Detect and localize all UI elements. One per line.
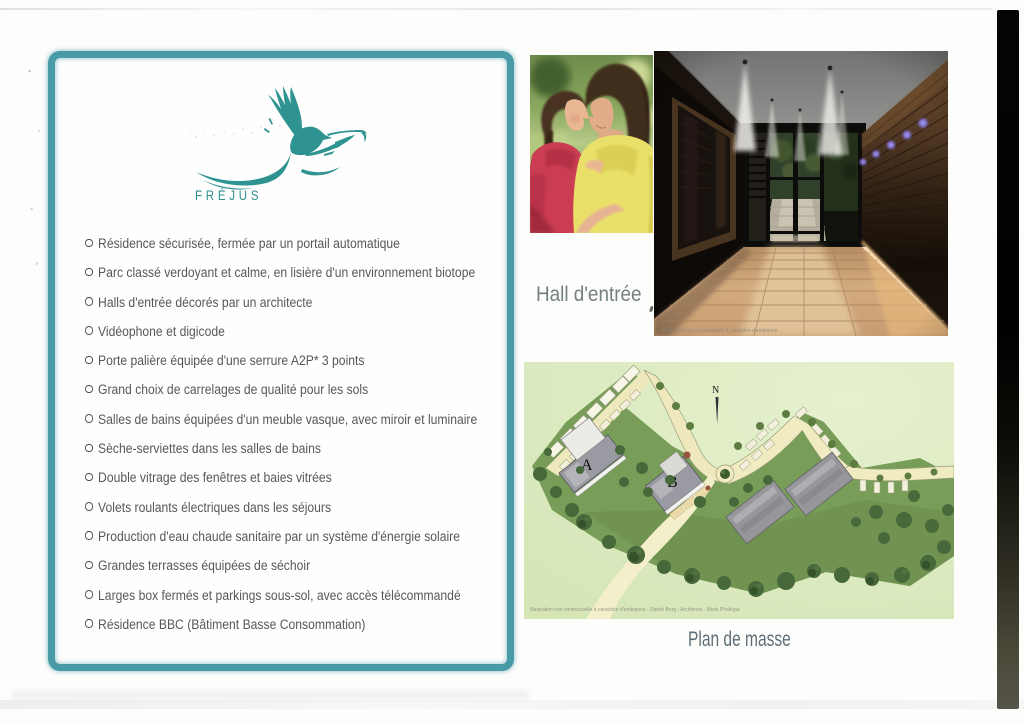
- svg-text:N: N: [712, 385, 719, 396]
- svg-text:Illustration non contractuelle: Illustration non contractuelle à caractè…: [530, 607, 740, 613]
- svg-text:Illustration non contractuelle: Illustration non contractuelle à caractè…: [662, 328, 778, 334]
